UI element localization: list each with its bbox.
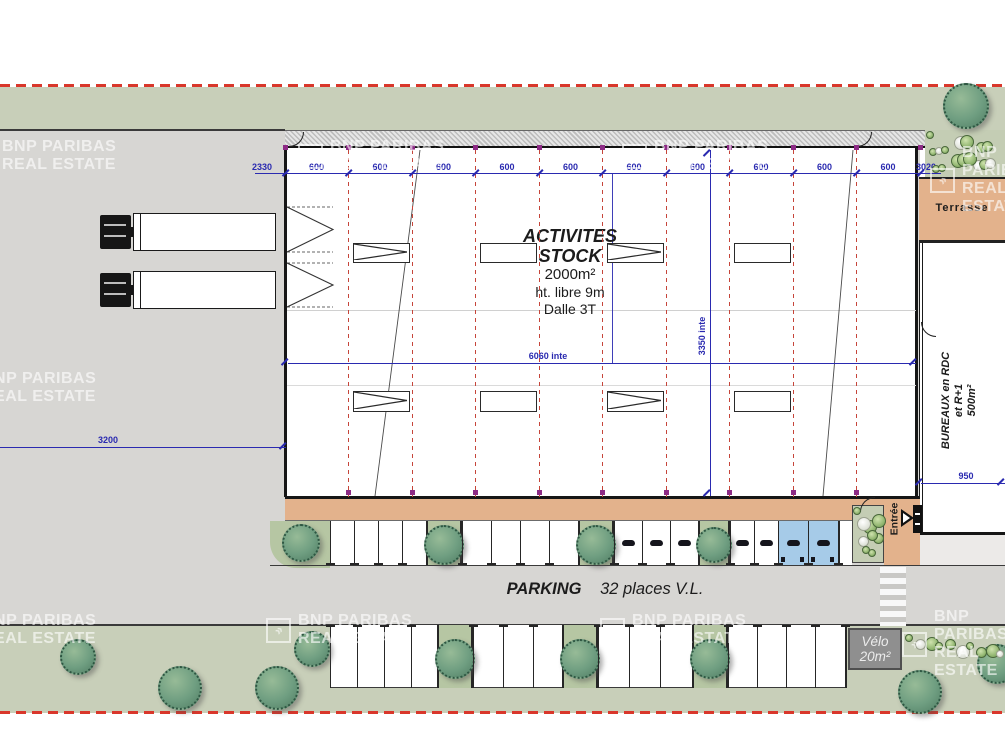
brand-watermark: » BNP PARIBAS REAL ESTATE: [902, 608, 1005, 680]
boundary-line-top: [0, 84, 1005, 87]
dim-6060-label: 6060 inte: [505, 351, 591, 361]
column-marker: [600, 490, 605, 495]
stall-crossbar: [811, 625, 820, 627]
grid-line: [475, 150, 476, 497]
brand-watermark-line2: REAL ESTATE: [962, 180, 1005, 216]
stall-crossbar: [545, 563, 554, 565]
brand-watermark-line1: BNP PARIBAS: [2, 138, 116, 156]
offices-label-line2: et R+1: [954, 351, 967, 448]
grid-line: [348, 150, 349, 497]
bay-chevron-icon: [354, 244, 407, 260]
brand-logo-icon: »: [902, 632, 927, 657]
column-marker: [727, 490, 732, 495]
stall-crossbar: [499, 625, 508, 627]
brand-watermark: BNP PARIBAS REAL ESTATE: [2, 138, 116, 174]
truck-cab-detail: [104, 282, 126, 284]
truck-trailer-joint: [140, 214, 141, 250]
brand-watermark-text: BNP PARIBAS REAL ESTATE: [330, 138, 444, 174]
offices-label-line3: 500m²: [967, 351, 980, 448]
stall-crossbar: [529, 625, 538, 627]
pmr-mark-icon: [800, 557, 804, 562]
car-glyph-icon: [650, 540, 663, 546]
brand-watermark-line1: BNP PARIBAS: [654, 138, 768, 156]
parking-stall: [549, 521, 578, 565]
brand-watermark: BNP PARIBAS REAL ESTATE: [0, 370, 96, 406]
brand-watermark: » BNP PARIBAS REAL ESTATE: [930, 144, 1005, 216]
column-marker: [854, 145, 859, 150]
brand-logo-icon: »: [298, 144, 323, 169]
building-slab-label: Dalle 3T: [492, 301, 648, 318]
stall-crossbar: [350, 563, 359, 565]
column-marker: [854, 490, 859, 495]
brand-watermark-line2: REAL ESTATE: [330, 156, 444, 174]
stall-crossbar: [834, 563, 843, 565]
column-marker: [600, 145, 605, 150]
brand-watermark-line2: REAL ESTATE: [0, 388, 96, 406]
site-plan: Vélo 20m² 3200 6060 inte 3350 inte 950 A…: [0, 0, 1005, 754]
grid-line: [856, 150, 857, 497]
parking-capacity: 32 places V.L.: [600, 580, 703, 598]
dim-950-label: 950: [936, 471, 996, 481]
parking-stall: [473, 625, 503, 688]
grid-line: [729, 150, 730, 497]
stall-crossbar: [326, 563, 335, 565]
parking-stall: [354, 521, 378, 565]
stall-crossbar: [638, 563, 647, 565]
column-marker: [473, 490, 478, 495]
dim-chain-label: 600: [805, 162, 845, 172]
offices-label-block: BUREAUX en RDC et R+1 500m²: [905, 330, 1005, 470]
truck-trailer-joint: [140, 272, 141, 308]
tree: [576, 525, 616, 565]
stall-crossbar: [750, 563, 759, 565]
brand-watermark-text: BNP PARIBAS REAL ESTATE: [0, 612, 96, 648]
brand-watermark-line1: BNP PARIBAS: [298, 612, 412, 630]
roof-bay-rect: [353, 391, 410, 412]
grid-line: [602, 150, 603, 497]
bay-chevron-icon: [608, 244, 661, 260]
stall-crossbar: [841, 625, 850, 627]
brand-watermark-line1: BNP PARIBAS: [0, 370, 96, 388]
stall-crossbar: [398, 563, 407, 565]
entrance-label: Entrée: [888, 503, 900, 536]
tree: [943, 83, 989, 129]
stall-crossbar: [753, 625, 762, 627]
car-glyph-icon: [736, 540, 749, 546]
parking-stall: [786, 625, 815, 688]
dim-chain-label: 600: [551, 162, 591, 172]
column-marker: [791, 490, 796, 495]
grid-line: [412, 150, 413, 497]
stall-crossbar: [726, 563, 735, 565]
grid-line: [666, 150, 667, 497]
column-marker: [283, 145, 288, 150]
brand-watermark-line2: REAL ESTATE: [0, 630, 96, 648]
column-marker: [664, 490, 669, 495]
truck-cab-detail: [104, 293, 126, 295]
column-marker: [537, 145, 542, 150]
brand-watermark: » BNP PARIBAS REAL ESTATE: [298, 138, 444, 174]
parking-stall: [815, 625, 845, 688]
brand-watermark: » BNP PARIBAS REAL ESTATE: [622, 138, 768, 174]
parking-stall: [330, 521, 354, 565]
tree: [435, 639, 475, 679]
column-marker: [537, 490, 542, 495]
brand-watermark: » BNP PARIBAS REAL ESTATE: [266, 612, 412, 648]
car-glyph-icon: [678, 540, 691, 546]
stall-crossbar: [610, 563, 619, 565]
column-marker: [346, 490, 351, 495]
bush-icon: [862, 546, 870, 554]
parking-stall: [533, 625, 562, 688]
truck-trailer: [133, 213, 276, 251]
pmr-mark-icon: [830, 557, 834, 562]
dim-3200-label: 3200: [78, 435, 138, 445]
offices-label-rotated: BUREAUX en RDC et R+1 500m²: [941, 351, 980, 448]
stall-crossbar: [469, 625, 478, 627]
brand-watermark-text: BNP PARIBAS REAL ESTATE: [962, 144, 1005, 216]
road-edge-top: [0, 129, 285, 131]
brand-watermark-line2: REAL ESTATE: [2, 156, 116, 174]
building-label-block: ACTIVITES STOCK 2000m² ht. libre 9m Dall…: [492, 226, 648, 318]
car-glyph-icon: [817, 540, 830, 546]
pmr-mark-icon: [811, 557, 815, 562]
stall-crossbar: [374, 563, 383, 565]
stall-divider-end: [845, 625, 847, 688]
roof-bay-rect: [480, 243, 537, 263]
tree: [696, 527, 732, 563]
brand-watermark-line2: REAL ESTATE: [934, 644, 1005, 680]
bush-icon: [926, 131, 934, 139]
grid-line: [539, 150, 540, 497]
building-area-label: 2000m²: [492, 266, 648, 284]
stall-crossbar: [782, 625, 791, 627]
stall-divider-end: [838, 521, 840, 565]
dim-3350-line: [710, 150, 711, 496]
car-glyph-icon: [760, 540, 773, 546]
stall-crossbar: [458, 563, 467, 565]
parking-stall: [378, 521, 402, 565]
brand-watermark-line2: REAL ESTATE: [298, 630, 412, 648]
column-marker: [918, 145, 923, 150]
bush-icon: [853, 507, 861, 515]
truck-cab-detail: [104, 224, 126, 226]
parking-stall: [402, 521, 426, 565]
roof-bay-rect: [607, 391, 664, 412]
roof-bay-rect: [480, 391, 537, 412]
column-marker: [410, 490, 415, 495]
brand-watermark-line2: REAL ESTATE: [654, 156, 768, 174]
walkway: [285, 499, 920, 521]
brand-watermark-text: BNP PARIBAS REAL ESTATE: [632, 612, 746, 648]
brand-logo-icon: »: [266, 618, 291, 643]
car-glyph-icon: [622, 540, 635, 546]
stall-crossbar: [666, 563, 675, 565]
dim-3350-label: 3350 inte: [697, 316, 707, 356]
brand-watermark-line1: BNP PARIBAS: [632, 612, 746, 630]
brand-watermark-text: BNP PARIBAS REAL ESTATE: [298, 612, 412, 648]
bush-icon: [872, 514, 886, 528]
brand-watermark-line1: BNP PARIBAS: [0, 612, 96, 630]
parking-stall: [411, 625, 437, 688]
column-marker: [791, 145, 796, 150]
roof-bay-rect: [607, 243, 664, 263]
brand-logo-icon: »: [600, 618, 625, 643]
brand-watermark-line2: REAL ESTATE: [632, 630, 746, 648]
dim-3200-line: [0, 447, 286, 448]
boundary-line-bottom: [0, 711, 1005, 714]
stall-crossbar: [516, 563, 525, 565]
truck: [100, 213, 276, 251]
stall-crossbar: [804, 563, 813, 565]
brand-watermark: BNP PARIBAS REAL ESTATE: [0, 612, 96, 648]
pavement-right: [920, 533, 1005, 565]
tree: [424, 525, 464, 565]
brand-watermark-line1: BNP PARIBAS: [934, 608, 1005, 644]
roof-bay-rect: [353, 243, 410, 263]
pmr-mark-icon: [781, 557, 785, 562]
brand-logo-icon: »: [930, 168, 955, 193]
parking-label-block: PARKING 32 places V.L.: [440, 580, 770, 599]
bush-icon: [867, 530, 878, 541]
parking-stall: [757, 625, 786, 688]
parking-stall: [503, 625, 533, 688]
brand-watermark-line1: BNP PARIBAS: [330, 138, 444, 156]
brand-watermark-text: BNP PARIBAS REAL ESTATE: [654, 138, 768, 174]
brand-watermark: » BNP PARIBAS REAL ESTATE: [600, 612, 746, 648]
dim-chain-label: 600: [868, 162, 908, 172]
parking-stall: [462, 521, 491, 565]
truck-cab: [100, 273, 131, 307]
dim-chain-label: 2330: [242, 162, 282, 172]
bike-shed-label-line2: 20m²: [860, 649, 891, 664]
truck-cab-detail: [104, 235, 126, 237]
roof-bay-rect: [734, 243, 791, 263]
truck: [100, 271, 276, 309]
car-glyph-icon: [787, 540, 800, 546]
bush-icon: [857, 517, 871, 531]
grid-line: [793, 150, 794, 497]
building-height-label: ht. libre 9m: [492, 284, 648, 301]
brand-watermark-line1: BNP PARIBAS: [962, 144, 1005, 180]
bike-shed-label-line1: Vélo: [861, 634, 888, 649]
stall-crossbar: [487, 563, 496, 565]
dim-950-line: [921, 483, 1005, 484]
tree: [255, 666, 299, 710]
brand-logo-icon: »: [622, 144, 647, 169]
offices-label-line1: BUREAUX en RDC: [941, 351, 954, 448]
roof-bay-rect: [734, 391, 791, 412]
stall-crossbar: [774, 563, 783, 565]
bay-chevron-icon: [608, 392, 661, 409]
tree: [282, 524, 320, 562]
tree: [560, 639, 600, 679]
parking-stall: [520, 521, 549, 565]
bay-chevron-icon: [354, 392, 407, 409]
brand-watermark-text: BNP PARIBAS REAL ESTATE: [0, 370, 96, 406]
dim-chain-label: 600: [487, 162, 527, 172]
bike-shed: Vélo 20m²: [848, 628, 902, 670]
column-marker: [473, 145, 478, 150]
truck-cab: [100, 215, 131, 249]
green-strip-top: [0, 87, 1005, 130]
tree: [158, 666, 202, 710]
brand-watermark-text: BNP PARIBAS REAL ESTATE: [934, 608, 1005, 680]
parking-title: PARKING: [507, 580, 582, 598]
parking-stall: [491, 521, 520, 565]
truck-trailer: [133, 271, 276, 309]
brand-watermark-text: BNP PARIBAS REAL ESTATE: [2, 138, 116, 174]
